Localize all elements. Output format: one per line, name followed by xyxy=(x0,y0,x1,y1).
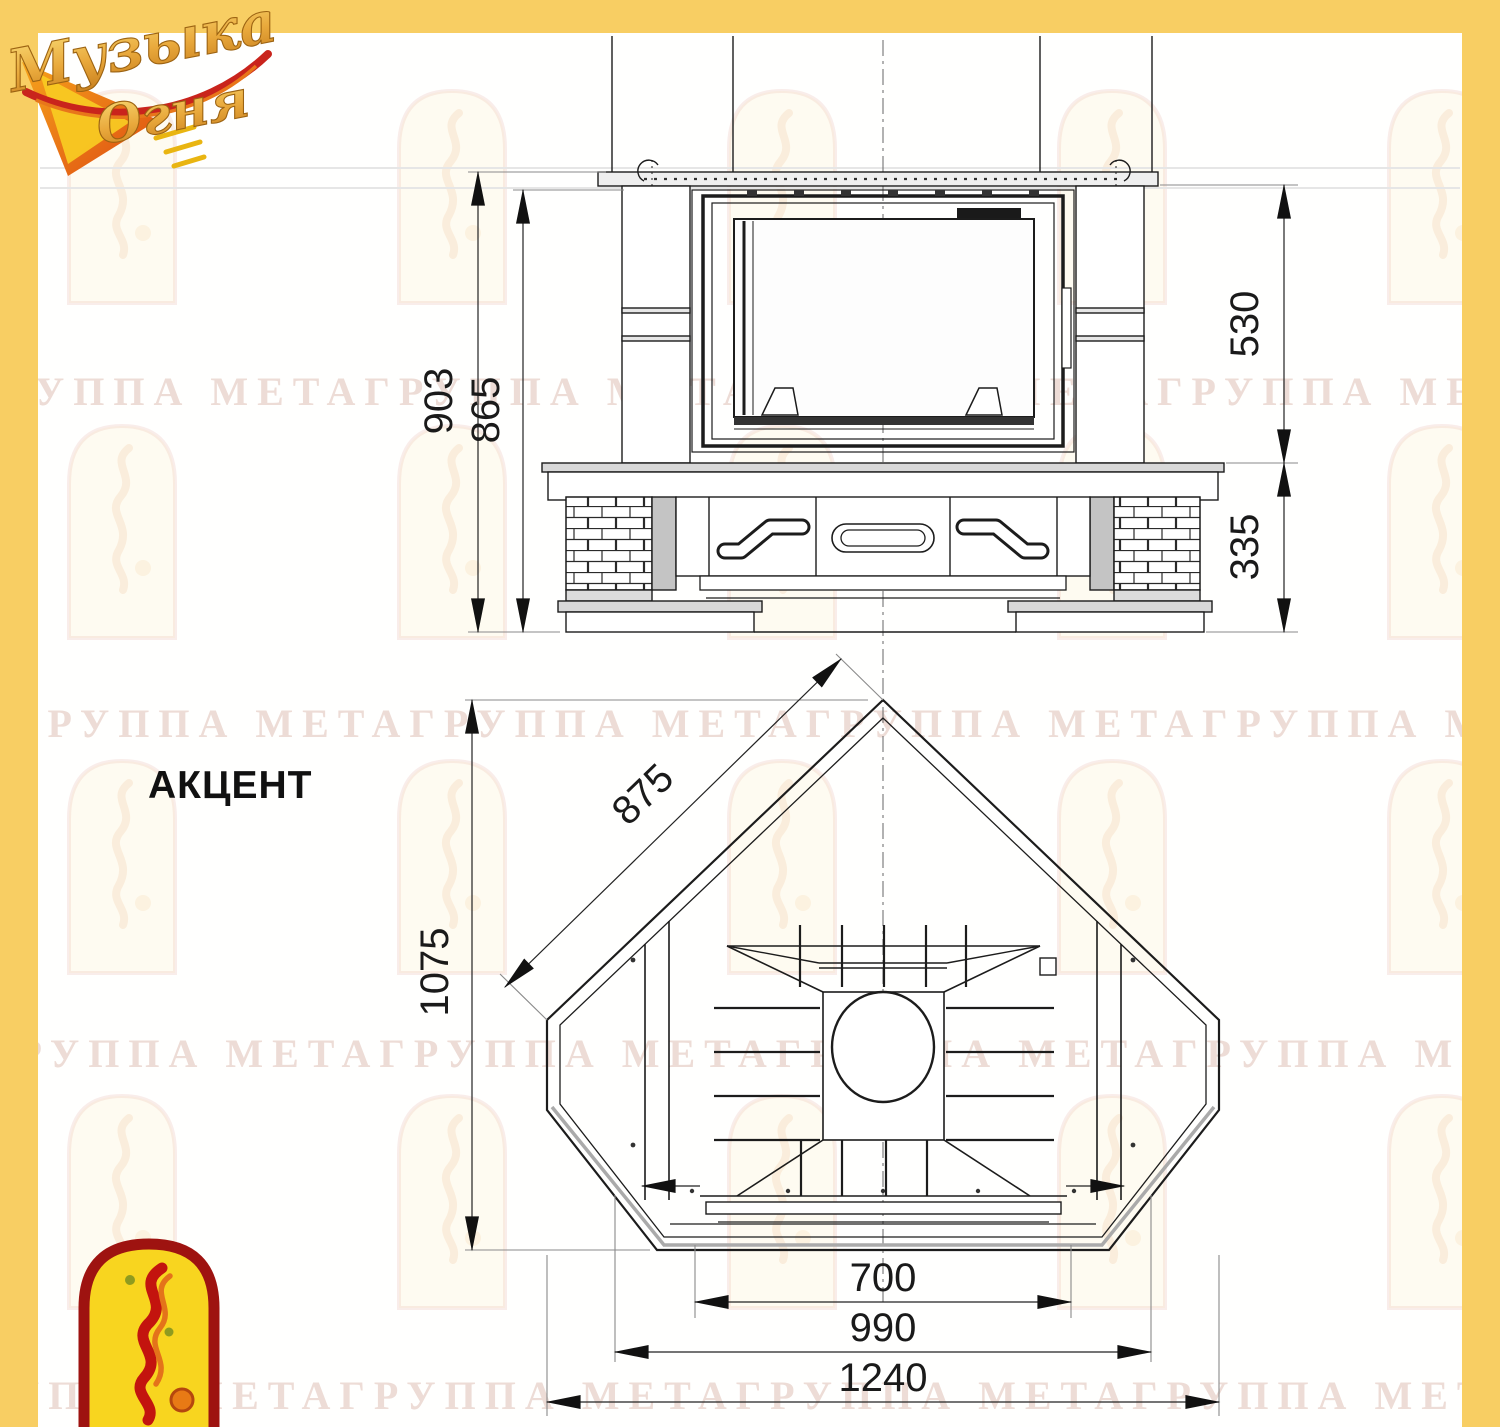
dim-865-label: 865 xyxy=(464,377,508,444)
meta-group-emblem xyxy=(72,1236,226,1427)
dim-1075-label: 1075 xyxy=(413,928,457,1017)
brick-pier-right xyxy=(1114,497,1200,590)
drawing-canvas: ГРУППА МЕТАГРУППА МЕТАГРУППА МЕТАГРУППА … xyxy=(38,33,1462,1427)
page: ГРУППА МЕТАГРУППА МЕТАГРУППА МЕТАГРУППА … xyxy=(0,0,1500,1427)
dim-875-label: 875 xyxy=(604,756,683,834)
plan-view-dimensions: 1075 875 700 990 1240 xyxy=(413,654,1219,1416)
dim-335-label: 335 xyxy=(1223,514,1267,581)
dim-700-label: 700 xyxy=(850,1256,917,1300)
dim-903-label: 903 xyxy=(417,368,461,435)
dim-530-label: 530 xyxy=(1223,291,1267,358)
brand-logo: Музыка Огня xyxy=(6,0,286,190)
model-title: АКЦЕНТ xyxy=(148,764,312,808)
insert-brand-badge xyxy=(957,208,1021,218)
technical-drawing: 903 865 530 335 xyxy=(38,33,1462,1427)
dim-990-label: 990 xyxy=(850,1306,917,1350)
dim-1240-label: 1240 xyxy=(839,1356,928,1400)
brick-pier-left xyxy=(566,497,652,590)
door-hinge xyxy=(1062,288,1071,368)
